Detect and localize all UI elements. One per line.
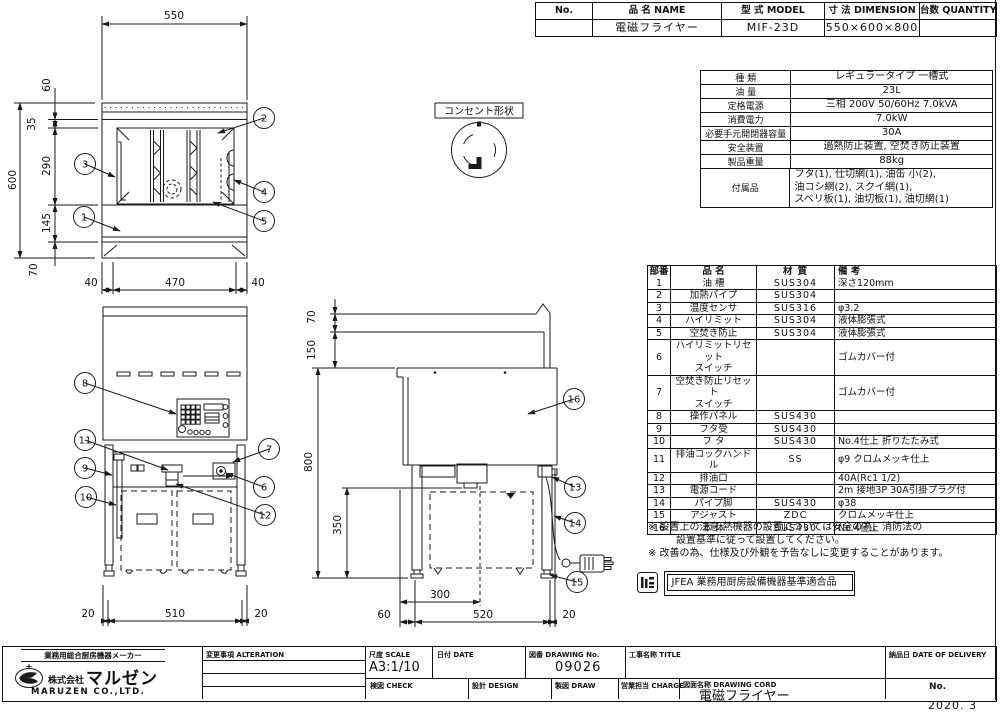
scale-label: 尺度 SCALE <box>369 650 410 660</box>
parts-table: 部番 品 名 材 質 備 考 1 油 槽 SUS304 深さ120mm 2 加熱… <box>647 265 997 535</box>
part-material <box>757 485 835 497</box>
side-dim-20: 20 <box>562 609 575 621</box>
spec-label: 製品重量 <box>701 155 791 168</box>
charge-label: 営業担当 CHARGE <box>621 681 684 691</box>
header-table-row: 電磁フライヤー MIF-23D 550×600×800 <box>536 19 996 36</box>
part-note: φ38 <box>835 498 996 510</box>
installation-notes: ※ 設置上の注意 熱機器の設置については安全の為、消防法の 設置基準に従って設置… <box>648 521 995 560</box>
svg-text:3: 3 <box>82 160 88 171</box>
svg-text:1: 1 <box>81 213 87 224</box>
part-note: No.4仕上 折りたたみ式 <box>835 436 996 448</box>
part-name: ハイリミットリセット スイッチ <box>671 340 757 375</box>
part-name: 油 槽 <box>671 278 757 290</box>
svg-text:6: 6 <box>261 483 267 494</box>
callout-8: 8 <box>75 373 177 415</box>
parts-row: 14 パイプ脚 SUS430 φ38 <box>648 497 996 510</box>
plan-dim-470: 470 <box>165 277 185 289</box>
svg-text:11: 11 <box>79 436 92 447</box>
spec-label: 安全装置 <box>701 141 791 154</box>
side-dim-70: 70 <box>306 310 318 323</box>
check-label: 検図 CHECK <box>370 681 413 691</box>
svg-text:15: 15 <box>571 578 584 589</box>
part-note: 液体膨張式 <box>835 328 996 340</box>
svg-text:7: 7 <box>266 445 272 456</box>
technical-drawing: 550 <box>0 0 645 655</box>
parts-row: 7 空焚き防止リセット スイッチ ゴムカバー付 <box>648 375 996 411</box>
parts-row: 2 加熱パイプ SUS304 <box>648 289 996 302</box>
part-no: 12 <box>648 473 671 485</box>
product-name: 電磁フライヤー <box>593 20 722 36</box>
spec-row: 必要手元開閉器容量 30A <box>701 126 992 140</box>
note-line-3: ※ 改善の為、仕様及び外観を予告なしに変更することがあります。 <box>648 547 995 560</box>
alteration-label: 変更事項 ALTERATION <box>206 650 284 660</box>
front-dim-20l: 20 <box>81 608 94 620</box>
part-material: SS <box>757 449 835 472</box>
svg-text:10: 10 <box>80 493 93 504</box>
col-no: No. <box>536 3 593 19</box>
part-no: 5 <box>648 328 671 340</box>
part-name: 排油コックハンドル <box>671 449 757 472</box>
parts-row: 8 操作パネル SUS430 <box>648 410 996 423</box>
part-no: 6 <box>648 340 671 375</box>
spec-value: 三相 200V 50/60Hz 7.0kVA <box>791 99 992 112</box>
part-material: SUS316 <box>757 303 835 315</box>
no-label: No. <box>929 682 946 692</box>
part-material: SUS430 <box>757 436 835 448</box>
svg-text:5: 5 <box>261 217 267 228</box>
part-no: 1 <box>648 278 671 290</box>
parts-row: 10 フ タ SUS430 No.4仕上 折りたたみ式 <box>648 435 996 448</box>
spec-label: 必要手元開閉器容量 <box>701 127 791 140</box>
plan-dim-top: 550 <box>164 10 184 22</box>
note-line-2: 設置基準に従って設置してください。 <box>648 534 995 547</box>
part-no: 13 <box>648 485 671 497</box>
part-name: ハイリミット <box>671 315 757 327</box>
spec-label: 種 類 <box>701 71 791 84</box>
note-line-1: ※ 設置上の注意 熱機器の設置については安全の為、消防法の <box>648 521 995 534</box>
drawing-no-label: 図番 DRAWING No. <box>529 650 599 660</box>
parts-row: 6 ハイリミットリセット スイッチ ゴムカバー付 <box>648 339 996 375</box>
side-dim-150: 150 <box>306 340 318 360</box>
vent-slots <box>117 372 240 376</box>
part-no: 8 <box>648 411 671 423</box>
col-quantity: 台数 QUANTITY <box>920 3 996 19</box>
spec-row: 安全装置 過熱防止装置, 空焚き防止装置 <box>701 140 992 154</box>
spec-row: 種 類 レギュラータイプ 一槽式 <box>701 71 992 84</box>
callout-3: 3 <box>75 154 116 178</box>
svg-text:12: 12 <box>259 511 272 522</box>
plan-dim-70: 70 <box>28 263 40 276</box>
parts-row: 5 空焚き防止 SUS304 液体膨張式 <box>648 327 996 340</box>
spec-row: 製品重量 88kg <box>701 154 992 168</box>
col-name: 品 名 NAME <box>593 3 722 19</box>
spec-label: 消費電力 <box>701 113 791 126</box>
part-material: SUS430 <box>757 424 835 436</box>
part-note: ゴムカバー付 <box>835 376 996 411</box>
spec-value: 88kg <box>791 155 992 168</box>
part-name: 空焚き防止リセット スイッチ <box>671 376 757 411</box>
part-name: 温度センサ <box>671 303 757 315</box>
company-name: マルゼン <box>86 664 158 689</box>
plan-dim-40r: 40 <box>251 277 264 289</box>
part-no: 4 <box>648 315 671 327</box>
part-name: アジャスト <box>671 510 757 522</box>
front-view: 20 510 20 8 11 9 10 7 6 12 <box>75 307 280 626</box>
parts-row: 4 ハイリミット SUS304 液体膨張式 <box>648 314 996 327</box>
maruzen-logo-icon <box>13 663 45 689</box>
svg-text:13: 13 <box>569 483 582 494</box>
jfea-seal-icon <box>636 571 659 594</box>
col-material: 材 質 <box>757 266 835 278</box>
part-no: 3 <box>648 303 671 315</box>
drawing-no-value: 09026 <box>555 660 601 675</box>
side-dim-800: 800 <box>303 452 315 472</box>
control-panel <box>177 399 229 437</box>
callout-2: 2 <box>218 108 275 134</box>
design-label: 設計 DESIGN <box>472 681 518 691</box>
plan-view: 550 <box>7 10 275 294</box>
svg-text:14: 14 <box>569 519 582 530</box>
spec-row: 付属品 フタ(1), 仕切網(1), 油缶 小(2), 油コシ網(2), スクイ… <box>701 168 992 207</box>
part-note: クロムメッキ仕上 <box>835 510 996 522</box>
power-plug-icon <box>580 555 613 572</box>
product-quantity <box>920 20 996 36</box>
front-dim-510: 510 <box>165 608 185 620</box>
product-dimension: 550×600×800 <box>825 20 920 36</box>
plan-dim-35: 35 <box>26 117 38 130</box>
part-note: 液体膨張式 <box>835 315 996 327</box>
part-material: SUS304 <box>757 328 835 340</box>
part-name: フタ受 <box>671 424 757 436</box>
part-name: 加熱パイプ <box>671 290 757 302</box>
svg-text:2: 2 <box>261 114 267 125</box>
header-table: No. 品 名 NAME 型 式 MODEL 寸 法 DIMENSION 台数 … <box>535 2 997 37</box>
parts-row: 3 温度センサ SUS316 φ3.2 <box>648 302 996 315</box>
part-no: 14 <box>648 498 671 510</box>
part-name: パイプ脚 <box>671 498 757 510</box>
part-note: φ3.2 <box>835 303 996 315</box>
parts-row: 15 アジャスト ZDC クロムメッキ仕上 <box>648 509 996 522</box>
spec-row: 消費電力 7.0kW <box>701 112 992 126</box>
part-note: ゴムカバー付 <box>835 340 996 375</box>
spec-row: 油 量 23L <box>701 84 992 98</box>
parts-row: 9 フタ受 SUS430 <box>648 423 996 436</box>
jfea-label: JFEA 業務用厨房設備機器基準適合品 <box>667 574 853 591</box>
side-dim-350: 350 <box>332 515 344 535</box>
part-material <box>757 340 835 375</box>
part-material <box>757 473 835 485</box>
part-name: 電源コード <box>671 485 757 497</box>
part-material: SUS430 <box>757 498 835 510</box>
scale-value: A3:1/10 <box>369 660 420 675</box>
part-note <box>835 424 996 436</box>
header-table-head: No. 品 名 NAME 型 式 MODEL 寸 法 DIMENSION 台数 … <box>536 3 996 19</box>
spec-value: フタ(1), 仕切網(1), 油缶 小(2), 油コシ網(2), スクイ網(1)… <box>790 169 992 207</box>
col-part-name: 品 名 <box>671 266 757 278</box>
front-dim-20r: 20 <box>254 608 267 620</box>
callout-14: 14 <box>554 513 586 534</box>
parts-row: 11 排油コックハンドル SS φ9 クロムメッキ仕上 <box>648 448 996 472</box>
side-dim-60: 60 <box>377 609 390 621</box>
drawing-cord-value: 電磁フライヤー <box>699 685 790 704</box>
parts-row: 12 排油口 40A(Rc1 1/2) <box>648 472 996 485</box>
spec-label: 定格電源 <box>701 99 791 112</box>
col-dimension: 寸 法 DIMENSION <box>825 3 920 19</box>
col-part-no: 部番 <box>648 266 671 278</box>
part-no: 7 <box>648 376 671 411</box>
part-no: 9 <box>648 424 671 436</box>
callout-9: 9 <box>75 458 113 479</box>
part-name: フ タ <box>671 436 757 448</box>
part-note <box>835 290 996 302</box>
part-material: SUS430 <box>757 411 835 423</box>
part-material: ZDC <box>757 510 835 522</box>
callout-4: 4 <box>234 180 275 203</box>
title-block: 業務用総合厨房機器メーカー 株式会社 マルゼン MARUZEN CO.,LTD.… <box>2 646 997 702</box>
svg-text:16: 16 <box>568 395 581 406</box>
col-remarks: 備 考 <box>835 266 996 278</box>
part-name: 排油口 <box>671 473 757 485</box>
spec-label: 付属品 <box>701 169 790 207</box>
spec-row: 定格電源 三相 200V 50/60Hz 7.0kVA <box>701 98 992 112</box>
part-note: 40A(Rc1 1/2) <box>835 473 996 485</box>
spec-value: 7.0kW <box>791 113 992 126</box>
value-no <box>536 20 593 36</box>
jfea-compliance-badge: JFEA 業務用厨房設備機器基準適合品 <box>664 571 855 596</box>
outlet-receptacle-icon <box>452 123 507 178</box>
spec-table: 種 類 レギュラータイプ 一槽式 油 量 23L 定格電源 三相 200V 50… <box>700 70 993 208</box>
company-block: 業務用総合厨房機器メーカー 株式会社 マルゼン MARUZEN CO.,LTD. <box>3 647 202 699</box>
part-name: 操作パネル <box>671 411 757 423</box>
spec-value: レギュラータイプ 一槽式 <box>791 71 992 84</box>
outlet-label: コンセント形状 <box>444 105 514 118</box>
company-name-en: MARUZEN CO.,LTD. <box>31 687 145 697</box>
part-note: φ9 クロムメッキ仕上 <box>835 449 996 472</box>
parts-row: 1 油 槽 SUS304 深さ120mm <box>648 278 996 290</box>
side-dim-300: 300 <box>430 589 450 601</box>
spec-value: 30A <box>791 127 992 140</box>
plan-dim-40l: 40 <box>84 277 97 289</box>
date-label: 日付 DATE <box>437 650 474 660</box>
part-note <box>835 411 996 423</box>
part-no: 10 <box>648 436 671 448</box>
spec-label: 油 量 <box>701 85 791 98</box>
part-material: SUS304 <box>757 315 835 327</box>
product-model: MIF-23D <box>722 20 825 36</box>
callout-7: 7 <box>233 439 280 463</box>
part-note: 2m 接地3P 30A引掛プラグ付 <box>835 485 996 497</box>
part-material: SUS304 <box>757 290 835 302</box>
side-dim-520: 520 <box>473 609 493 621</box>
outlet-diagram: コンセント形状 <box>435 103 523 178</box>
title-label: 工事名称 TITLE <box>629 650 681 660</box>
parts-row: 13 電源コード 2m 接地3P 30A引掛プラグ付 <box>648 484 996 497</box>
col-model: 型 式 MODEL <box>722 3 825 19</box>
callout-13: 13 <box>552 477 586 498</box>
svg-text:8: 8 <box>82 379 88 390</box>
callout-6: 6 <box>226 473 275 498</box>
part-no: 11 <box>648 449 671 472</box>
side-view: 70 150 800 350 300 60 520 20 16 13 14 <box>303 299 613 627</box>
heating-pipes <box>151 130 201 202</box>
part-no: 15 <box>648 510 671 522</box>
part-note: 深さ120mm <box>835 278 996 290</box>
spec-value: 23L <box>791 85 992 98</box>
part-name: 空焚き防止 <box>671 328 757 340</box>
company-prefix: 株式会社 <box>48 673 84 686</box>
revision-date: 2020. 3 <box>928 699 977 712</box>
callout-5: 5 <box>213 202 275 232</box>
draw-label: 製図 DRAW <box>555 681 595 691</box>
callout-16: 16 <box>528 389 585 415</box>
parts-table-head: 部番 品 名 材 質 備 考 <box>648 266 996 278</box>
plan-dim-145: 145 <box>41 213 53 233</box>
callout-15: 15 <box>550 572 588 593</box>
svg-text:9: 9 <box>82 464 88 475</box>
spec-value: 過熱防止装置, 空焚き防止装置 <box>791 141 992 154</box>
callout-1: 1 <box>74 207 121 232</box>
callout-10: 10 <box>76 487 117 508</box>
delivery-label: 納品日 DATE OF DELIVERY <box>889 650 986 660</box>
callout-11: 11 <box>75 430 169 471</box>
svg-text:4: 4 <box>261 188 267 199</box>
company-tagline: 業務用総合厨房機器メーカー <box>21 649 165 662</box>
part-material: SUS304 <box>757 278 835 290</box>
part-material <box>757 376 835 411</box>
plan-dim-290: 290 <box>41 156 53 176</box>
part-no: 2 <box>648 290 671 302</box>
plan-dim-60: 60 <box>41 78 53 91</box>
plan-dim-600: 600 <box>7 170 19 190</box>
